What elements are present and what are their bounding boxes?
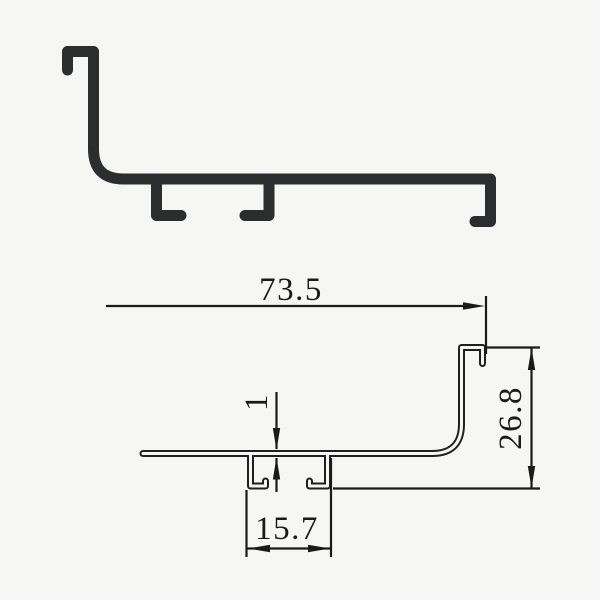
profile-solid-view: [68, 52, 491, 222]
dimension-channel-width: 15.7: [247, 458, 332, 557]
dimension-overall-width: 73.5: [106, 272, 486, 354]
dimension-overall-height: 26.8: [333, 348, 540, 489]
dim-thickness-arrow-up: [273, 458, 280, 480]
dim-height-label: 26.8: [493, 386, 529, 450]
dim-channel-label: 15.7: [255, 511, 319, 547]
profile-outline-core: [143, 348, 483, 487]
dimension-wall-thickness: 1: [239, 392, 280, 492]
dim-width-arrow-right: [463, 302, 485, 309]
drawing-canvas: 73.5 26.8 15.7 1: [0, 0, 600, 600]
dim-thickness-arrow-down: [273, 428, 280, 450]
dim-height-arrow-down: [528, 466, 535, 488]
dim-width-label: 73.5: [259, 272, 323, 308]
dim-height-arrow-up: [528, 348, 535, 370]
dim-thickness-label: 1: [239, 393, 275, 411]
profile-solid-shape: [68, 52, 491, 222]
profile-outline-view: [143, 348, 483, 487]
technical-drawing-page: 73.5 26.8 15.7 1: [0, 0, 600, 600]
profile-outline-shape: [143, 348, 483, 487]
